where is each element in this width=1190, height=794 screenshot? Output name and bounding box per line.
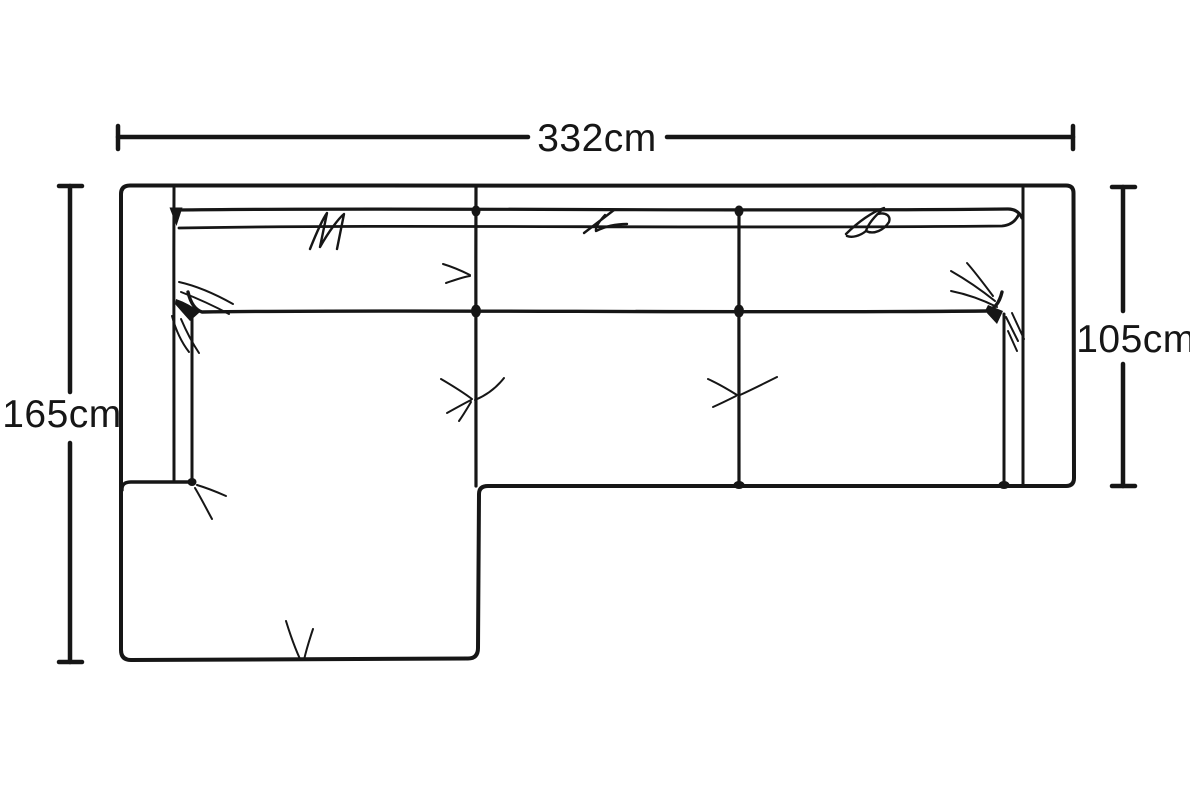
seat-depth-label: 105cm (1076, 318, 1190, 361)
sofa-drawing (121, 185, 1074, 660)
blob-divider-junction (734, 481, 745, 489)
wrinkle (967, 263, 993, 296)
chaise-depth-label: 165cm (2, 393, 122, 436)
blob-divider-junction (471, 305, 481, 318)
sofa-top-view-dimension-drawing: 332cm 165cm 105cm (0, 0, 1190, 794)
wrinkle (286, 621, 300, 659)
blob-chaise-junction (188, 478, 197, 486)
blob-divider-junction (999, 481, 1010, 489)
blob-right-seat-corner (985, 305, 1003, 324)
left-armrest-end-line (122, 482, 189, 490)
back-rail-inner-line (175, 209, 1022, 218)
wrinkle (475, 378, 504, 400)
wrinkle (181, 319, 199, 353)
wrinkle (304, 629, 313, 660)
wrinkle (708, 379, 737, 395)
back-cushion-scribble-middle (584, 210, 627, 233)
overall-width-label: 332cm (537, 117, 657, 160)
wrinkle (443, 264, 470, 275)
seat-back-junction-line (188, 292, 1002, 312)
wrinkle (446, 276, 470, 283)
blob-left-back-corner (170, 208, 183, 227)
blob-divider-junction (735, 206, 744, 217)
wrinkle-hatch (1006, 313, 1024, 351)
wrinkle (740, 377, 777, 395)
back-cushion-scribble-left (310, 213, 344, 249)
wrinkle-marks (172, 208, 1024, 660)
blob-left-seat-corner (175, 299, 200, 321)
blob-divider-junction (472, 206, 481, 217)
back-cushion-scribble-right (846, 208, 889, 237)
wrinkle (197, 485, 226, 496)
sofa-outer-outline (121, 185, 1074, 660)
dimension-diagram-page: 332cm 165cm 105cm (0, 0, 1190, 794)
wrinkle (195, 488, 212, 519)
wrinkle (713, 396, 736, 407)
dimension-chaise-depth: 165cm (2, 186, 122, 662)
blob-divider-junction (734, 305, 744, 318)
dimension-overall-width: 332cm (118, 117, 1073, 160)
dimension-seat-depth: 105cm (1076, 187, 1190, 486)
junction-ink-blobs (170, 206, 1010, 490)
wrinkle (441, 379, 472, 399)
